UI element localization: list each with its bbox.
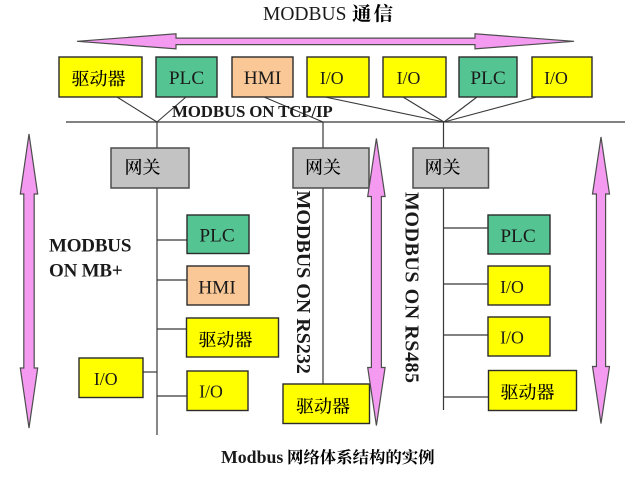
svg-text:MODBUS ON TCP/IP: MODBUS ON TCP/IP — [172, 102, 333, 121]
svg-text:I/O: I/O — [500, 277, 524, 297]
svg-text:HMI: HMI — [244, 68, 282, 89]
svg-text:MODBUS ON RS232: MODBUS ON RS232 — [292, 191, 314, 374]
svg-text:PLC: PLC — [199, 226, 234, 247]
svg-text:HMI: HMI — [198, 278, 236, 299]
svg-text:MODBUS: MODBUS — [49, 236, 131, 257]
svg-text:I/O: I/O — [500, 328, 524, 348]
svg-text:ON MB+: ON MB+ — [49, 261, 122, 282]
svg-text:I/O: I/O — [94, 369, 118, 389]
svg-text:I/O: I/O — [199, 382, 223, 402]
svg-text:Modbus: Modbus — [221, 447, 283, 467]
svg-text:PLC: PLC — [470, 68, 505, 89]
svg-text:I/O: I/O — [397, 68, 421, 88]
svg-text:PLC: PLC — [500, 226, 535, 247]
svg-text:MODBUS ON RS485: MODBUS ON RS485 — [401, 192, 423, 384]
svg-text:I/O: I/O — [320, 68, 344, 88]
svg-text:MODBUS: MODBUS — [263, 4, 346, 25]
svg-text:I/O: I/O — [544, 68, 568, 88]
svg-text:PLC: PLC — [169, 68, 204, 89]
